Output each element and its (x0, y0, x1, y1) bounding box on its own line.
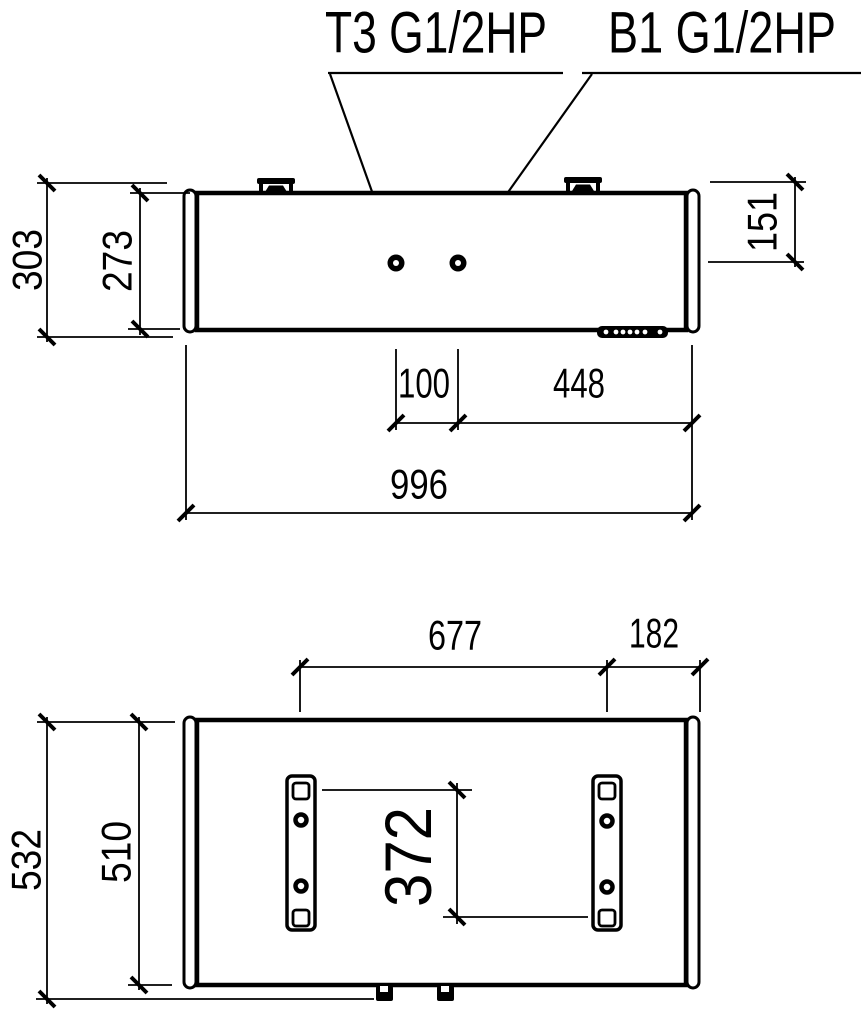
foot-left (376, 986, 393, 1001)
dim-height-overall: 303 (4, 229, 51, 291)
sender-strip (597, 326, 668, 338)
dim-width-body: 510 (93, 821, 140, 883)
filler-cap-right (564, 177, 602, 191)
dim-port-to-right-end: 448 (553, 360, 605, 407)
t3-port-icon (388, 255, 405, 272)
t3-port-label: T3 G1/2HP (325, 1, 547, 66)
dim-width-overall: 532 (3, 829, 50, 891)
dim-strap-to-end: 182 (629, 610, 679, 657)
dim-port-depth: 151 (739, 192, 786, 252)
dim-strap-hole-spacing: 372 (371, 807, 445, 907)
left-end-cap-bottom (184, 717, 196, 988)
foot-right (437, 986, 454, 1001)
technical-drawing-tank: T3 G1/2HP B1 G1/2HP (0, 0, 868, 1020)
right-end-cap-bottom (687, 717, 699, 988)
tank-body-side (197, 193, 686, 330)
left-end-cap-side (184, 190, 196, 332)
right-end-cap-side (687, 190, 699, 332)
b1-port-icon (450, 255, 467, 272)
side-view (184, 177, 699, 338)
dim-strap-spacing: 677 (428, 612, 482, 659)
dim-length-overall: 996 (390, 461, 448, 508)
filler-cap-left (257, 178, 295, 192)
drawing-svg: T3 G1/2HP B1 G1/2HP (0, 0, 868, 1020)
mounting-strap-left (287, 776, 315, 930)
mounting-strap-right (593, 776, 621, 930)
dim-port-spacing: 100 (398, 360, 450, 407)
dim-height-body: 273 (94, 230, 141, 292)
b1-port-label: B1 G1/2HP (608, 1, 836, 66)
